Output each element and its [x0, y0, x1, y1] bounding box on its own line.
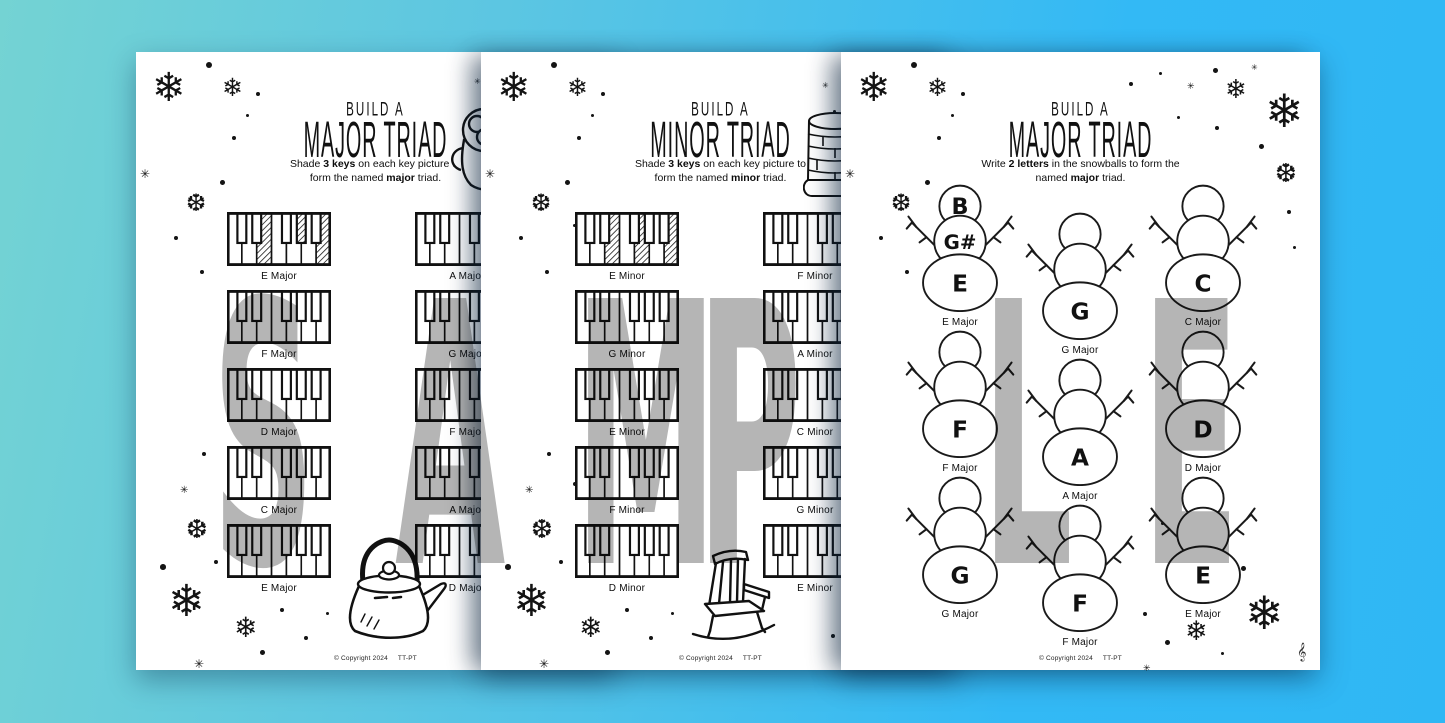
- chord-label: D Major: [227, 427, 331, 438]
- snow-dot: [280, 608, 284, 612]
- snow-dot: [565, 180, 570, 185]
- snowman-diagram: BG#E: [905, 183, 1015, 317]
- snow-dot: [879, 236, 883, 240]
- svg-text:F: F: [952, 416, 968, 443]
- snow-dot: [601, 92, 605, 96]
- snowman-diagram: E: [1148, 475, 1258, 609]
- snowman-cell: F F Major: [1025, 503, 1135, 648]
- snow-dot: [551, 62, 557, 68]
- svg-text:E: E: [1195, 562, 1211, 589]
- chord-label: E Major: [905, 317, 1015, 328]
- svg-text:B: B: [951, 194, 968, 220]
- piano-keyboard-diagram: [575, 290, 679, 349]
- snowman-diagram: G: [1025, 211, 1135, 345]
- snowflake-icon: ❆: [531, 192, 551, 216]
- keyboard-cell: E Major: [227, 212, 331, 282]
- chord-label: D Minor: [575, 583, 679, 594]
- piano-keyboard-diagram: [575, 446, 679, 505]
- snowflake-icon: ❄: [513, 580, 550, 624]
- svg-text:G#: G#: [944, 231, 977, 254]
- screenshot-stage: ❄❄✳❆✳✳❆❄❄✳ BUILD A MAJOR TRIAD Shade 3 k…: [0, 0, 1445, 723]
- kettle-illustration: [331, 534, 451, 644]
- piano-keyboard-diagram: [575, 368, 679, 427]
- snowman-diagram: F: [1025, 503, 1135, 637]
- chord-label: C Major: [227, 505, 331, 516]
- keyboard-cell: E Major: [227, 524, 331, 594]
- snowflake-icon: ✳: [140, 168, 150, 180]
- snow-dot: [911, 62, 917, 68]
- keyboard-cell: F Major: [227, 290, 331, 360]
- snow-dot: [326, 612, 329, 615]
- snow-dot: [1213, 68, 1218, 73]
- instructions: Shade 3 keys on each key picture to form…: [626, 158, 816, 185]
- svg-text:C: C: [1194, 270, 1211, 297]
- snowman-cell: F F Major: [905, 329, 1015, 474]
- snow-dot: [937, 136, 941, 140]
- snowflake-icon: ❄: [497, 68, 531, 108]
- snowflake-icon: ❄: [1185, 618, 1208, 645]
- snowflake-icon: ❄: [1265, 88, 1304, 134]
- chord-label: E Minor: [575, 271, 679, 282]
- piano-keyboard-diagram: [227, 446, 331, 505]
- chord-label: E Major: [227, 271, 331, 282]
- snow-dot: [545, 270, 549, 274]
- snow-dot: [547, 452, 551, 456]
- snow-dot: [160, 564, 166, 570]
- chord-label: E Minor: [575, 427, 679, 438]
- keyboard-cell: E Minor: [575, 368, 679, 438]
- snowflake-icon: ❆: [186, 516, 208, 542]
- snowflake-icon: ✳: [525, 486, 533, 496]
- svg-text:F: F: [1072, 590, 1088, 617]
- snow-dot: [1293, 246, 1296, 249]
- keyboard-cell: E Minor: [575, 212, 679, 282]
- snow-dot: [961, 92, 965, 96]
- chord-label: F Minor: [575, 505, 679, 516]
- snow-dot: [256, 92, 260, 96]
- snowman-cell: C C Major: [1148, 183, 1258, 328]
- snow-dot: [1143, 612, 1147, 616]
- chord-label: G Major: [1025, 345, 1135, 356]
- snowman-cell: D D Major: [1148, 329, 1258, 474]
- snowman-diagram: A: [1025, 357, 1135, 491]
- chord-label: E Major: [1148, 609, 1258, 620]
- snow-dot: [1159, 72, 1162, 75]
- keyboard-cell: D Minor: [575, 524, 679, 594]
- snowflake-icon: ✳: [1187, 82, 1195, 91]
- snow-dot: [649, 636, 653, 640]
- piano-keyboard-diagram: [227, 368, 331, 427]
- piano-keyboard-diagram: [575, 212, 679, 271]
- snowflake-icon: ✳: [822, 82, 829, 90]
- snowflake-icon: ✳: [180, 486, 188, 496]
- snowflake-icon: ✳: [474, 78, 481, 86]
- chord-label: A Major: [1025, 491, 1135, 502]
- chord-label: D Major: [1148, 463, 1258, 474]
- snowflake-icon: ❄: [168, 580, 205, 624]
- snow-dot: [232, 136, 236, 140]
- snowflake-icon: ❆: [186, 192, 206, 216]
- keyboard-cell: G Minor: [575, 290, 679, 360]
- piano-keyboard-diagram: [227, 212, 331, 271]
- svg-text:A: A: [1071, 444, 1089, 471]
- chord-label: F Major: [905, 463, 1015, 474]
- snowflake-icon: ✳: [1251, 64, 1258, 72]
- snow-dot: [1129, 82, 1133, 86]
- snow-dot: [174, 236, 178, 240]
- snowflake-icon: ❆: [1275, 160, 1297, 186]
- snowflake-icon: ❄: [579, 614, 602, 642]
- snow-dot: [220, 180, 225, 185]
- snow-dot: [1259, 144, 1264, 149]
- piano-keyboard-diagram: [227, 290, 331, 349]
- chord-label: G Minor: [575, 349, 679, 360]
- snow-dot: [625, 608, 629, 612]
- snowflake-icon: ✳: [485, 168, 495, 180]
- snowflake-icon: ❆: [531, 516, 553, 542]
- snowflake-icon: ❄: [152, 68, 186, 108]
- snow-dot: [202, 452, 206, 456]
- piano-keyboard-diagram: [227, 524, 331, 583]
- snow-dot: [577, 136, 581, 140]
- snowflake-icon: ✳: [845, 168, 855, 180]
- snowman-cell: A A Major: [1025, 357, 1135, 502]
- piano-keyboard-diagram: [575, 524, 679, 583]
- svg-text:E: E: [952, 270, 968, 297]
- snowman-cell: G G Major: [905, 475, 1015, 620]
- snow-dot: [519, 236, 523, 240]
- worksheet-page-major-triad-snowmen: ❄❄✳❆✳❄❄✳❆✳❆❄❄✳ BUILD A MAJOR TRIAD Write…: [841, 52, 1320, 670]
- svg-text:D: D: [1193, 416, 1212, 443]
- snowman-cell: E E Major: [1148, 475, 1258, 620]
- keyboard-cell: C Major: [227, 446, 331, 516]
- snow-dot: [1165, 640, 1170, 645]
- chord-label: C Major: [1148, 317, 1258, 328]
- snow-dot: [671, 612, 674, 615]
- snowman-cell: BG#E E Major: [905, 183, 1015, 328]
- snowman-diagram: D: [1148, 329, 1258, 463]
- svg-text:G: G: [950, 562, 969, 589]
- keyboard-cell: F Minor: [575, 446, 679, 516]
- snowflake-icon: ✳: [1143, 664, 1151, 673]
- snowman-diagram: G: [905, 475, 1015, 609]
- snow-dot: [304, 636, 308, 640]
- snowman-diagram: F: [905, 329, 1015, 463]
- snow-dot: [206, 62, 212, 68]
- snowman-cell: G G Major: [1025, 211, 1135, 356]
- chord-label: G Major: [905, 609, 1015, 620]
- instructions: Shade 3 keys on each key picture to form…: [281, 158, 471, 185]
- snow-dot: [505, 564, 511, 570]
- instructions: Write 2 letters in the snowballs to form…: [972, 158, 1190, 185]
- snow-dot: [200, 270, 204, 274]
- snowman-diagram: C: [1148, 183, 1258, 317]
- snow-dot: [1215, 126, 1219, 130]
- rocking-chair-illustration: [685, 546, 780, 646]
- snow-dot: [831, 634, 835, 638]
- snow-dot: [1287, 210, 1291, 214]
- svg-text:G: G: [1070, 298, 1089, 325]
- copyright-line: © Copyright 2024TT-PT: [841, 655, 1320, 662]
- snow-dot: [214, 560, 218, 564]
- chord-label: E Major: [227, 583, 331, 594]
- keyboard-cell: D Major: [227, 368, 331, 438]
- chord-label: F Major: [227, 349, 331, 360]
- snow-dot: [559, 560, 563, 564]
- snowflake-icon: ❄: [234, 614, 257, 642]
- snowflake-icon: ❄: [857, 68, 891, 108]
- chord-label: F Major: [1025, 637, 1135, 648]
